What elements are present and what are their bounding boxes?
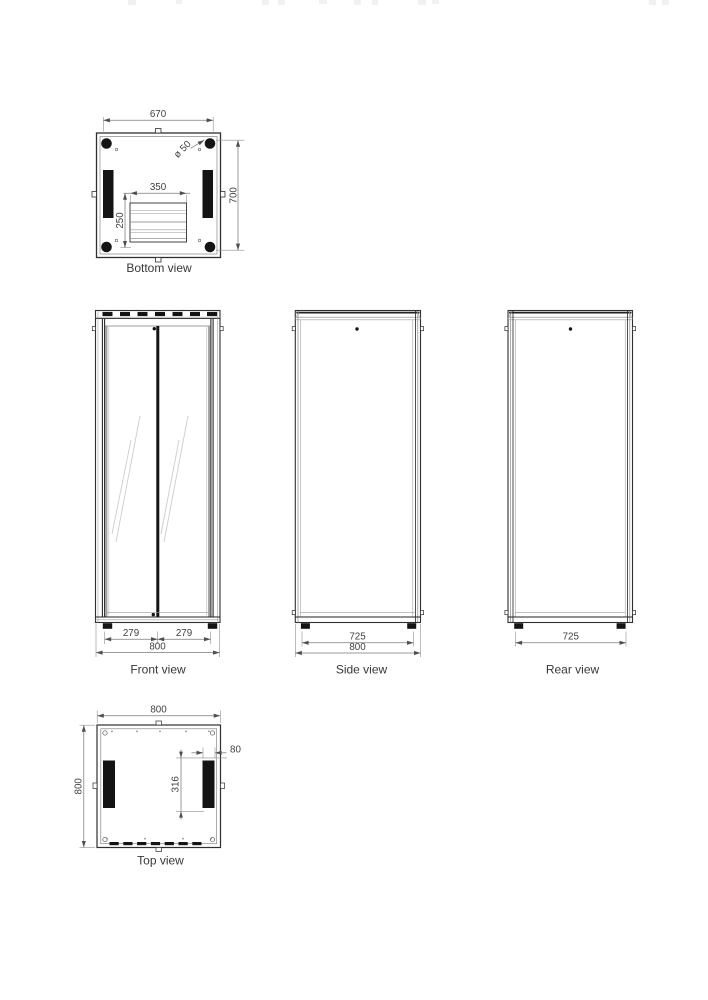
- dim-bottom-width-text: 670: [150, 109, 167, 120]
- dim-top-depth-text: 800: [73, 778, 84, 795]
- dim-slot-length-text: 316: [170, 776, 181, 793]
- foot: [208, 623, 217, 629]
- dim-front-overall-text: 800: [149, 641, 166, 652]
- dim-door-left-text: 279: [123, 628, 139, 639]
- corner-screw: [210, 731, 214, 735]
- foot: [514, 623, 523, 629]
- dim-cutout-depth-text: 250: [115, 212, 126, 229]
- corner-screw: [103, 731, 107, 735]
- tab: [156, 129, 162, 134]
- side-lock: [355, 327, 358, 330]
- cropped-header-artifacts: [128, 0, 669, 5]
- top-view-label: Top view: [137, 854, 184, 868]
- foot: [103, 623, 112, 629]
- dim-slot-width-text: 80: [230, 745, 241, 756]
- top-rear-vents: [110, 842, 202, 845]
- tab: [92, 192, 97, 198]
- rear-view: 725 Rear view: [505, 311, 636, 677]
- hinge-pin: [633, 327, 636, 331]
- hinge-pin: [421, 611, 424, 615]
- tab: [93, 783, 97, 789]
- side-cabinet-outline: [295, 311, 420, 623]
- dim-top-width-text: 800: [150, 705, 167, 716]
- hinge-pin: [220, 327, 223, 331]
- hinge-pin: [505, 611, 508, 615]
- rear-cabinet-outline: [508, 311, 633, 623]
- hinge-pin: [633, 611, 636, 615]
- dim-rear-feet: 725: [516, 632, 627, 647]
- foot: [301, 623, 310, 629]
- hinge-pin: [92, 327, 95, 331]
- top-view: 800 800 80 316 Top view: [73, 705, 241, 868]
- foot: [407, 623, 416, 629]
- front-view-label: Front view: [130, 663, 186, 677]
- rear-lock: [569, 327, 572, 330]
- bottom-view: 670 700 350 250 ø 50: [92, 109, 245, 275]
- tab: [221, 192, 226, 198]
- hinge-pin: [292, 327, 295, 331]
- door-lock-bottom: [152, 613, 155, 616]
- side-view-label: Side view: [336, 663, 388, 677]
- bottom-view-label: Bottom view: [126, 261, 192, 275]
- technical-drawing-canvas: 670 700 350 250 ø 50: [0, 0, 708, 1000]
- door-lock-top: [153, 327, 156, 330]
- dim-rear-feet-text: 725: [563, 632, 580, 643]
- dim-bottom-depth-text: 700: [228, 187, 239, 204]
- dim-side-feet-text: 725: [349, 632, 366, 643]
- side-view: 725 800 Side view: [292, 311, 423, 677]
- dim-cutout-width-text: 350: [150, 182, 167, 193]
- hinge-pin: [505, 327, 508, 331]
- bottom-cable-cutout: [130, 203, 187, 242]
- hinge-pin: [421, 327, 424, 331]
- tab: [221, 783, 225, 789]
- dim-front-overall: 800: [96, 624, 220, 657]
- door-center-divider: [156, 326, 159, 617]
- tab: [156, 848, 162, 852]
- rear-view-label: Rear view: [546, 663, 600, 677]
- dim-top-depth: 800: [73, 725, 95, 847]
- front-view: 279 279 800 Front view: [92, 311, 223, 677]
- dim-door-right-text: 279: [176, 628, 192, 639]
- dim-side-overall-text: 800: [349, 642, 366, 653]
- dim-top-width: 800: [97, 705, 220, 723]
- tab: [156, 721, 162, 725]
- hinge-pin: [292, 611, 295, 615]
- foot: [617, 623, 626, 629]
